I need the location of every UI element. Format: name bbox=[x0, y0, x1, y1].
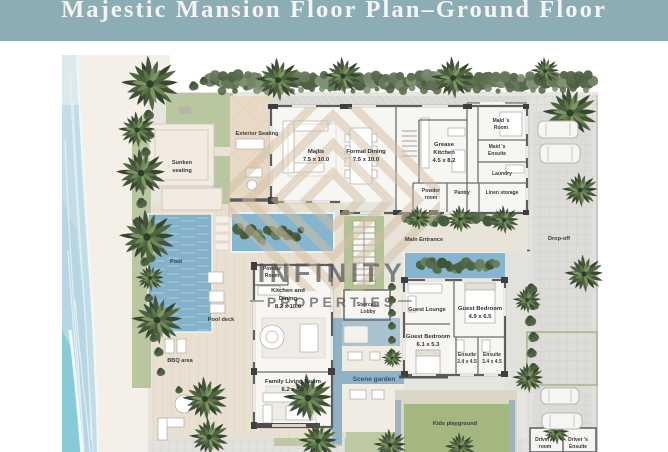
svg-text:6.2 x 5.5: 6.2 x 5.5 bbox=[282, 387, 306, 393]
svg-text:8.2 x 10.0: 8.2 x 10.0 bbox=[275, 304, 302, 310]
svg-text:Room: Room bbox=[265, 273, 280, 279]
svg-text:INFINITY: INFINITY bbox=[258, 258, 407, 288]
svg-text:Lobby: Lobby bbox=[361, 309, 376, 315]
svg-text:Linen storage: Linen storage bbox=[486, 190, 519, 196]
svg-text:room: room bbox=[425, 195, 438, 201]
svg-text:Maid 's: Maid 's bbox=[489, 144, 506, 150]
svg-text:4.5 x 8.2: 4.5 x 8.2 bbox=[433, 158, 457, 164]
svg-text:2.4 x 4.5: 2.4 x 4.5 bbox=[482, 359, 502, 365]
svg-text:Laundry: Laundry bbox=[492, 171, 512, 177]
svg-text:Ensuite: Ensuite bbox=[483, 352, 501, 358]
svg-text:Pool deck: Pool deck bbox=[208, 317, 235, 323]
svg-text:Pantry: Pantry bbox=[454, 190, 470, 196]
svg-text:Kitchen and: Kitchen and bbox=[271, 288, 305, 294]
svg-text:Kids playground: Kids playground bbox=[433, 421, 478, 427]
svg-text:Guest Lounge: Guest Lounge bbox=[408, 307, 446, 313]
svg-text:Scene garden: Scene garden bbox=[353, 376, 396, 383]
svg-text:Maid 's: Maid 's bbox=[493, 118, 510, 124]
svg-text:Ensuite: Ensuite bbox=[458, 352, 476, 358]
svg-text:Dining: Dining bbox=[279, 296, 298, 302]
svg-text:Family Living Room: Family Living Room bbox=[265, 379, 321, 385]
svg-text:Driver 's: Driver 's bbox=[535, 437, 555, 443]
svg-text:4.9 x 6.5: 4.9 x 6.5 bbox=[469, 314, 493, 320]
svg-text:7.5 x 10.0: 7.5 x 10.0 bbox=[303, 157, 330, 163]
svg-text:Majestic Mansion Floor Plan–Gr: Majestic Mansion Floor Plan–Ground Floor bbox=[61, 0, 607, 23]
svg-text:Ensuite: Ensuite bbox=[488, 151, 506, 157]
svg-text:Sunken: Sunken bbox=[172, 160, 193, 166]
svg-text:7.5 x 10.0: 7.5 x 10.0 bbox=[353, 157, 380, 163]
svg-text:Ensuite: Ensuite bbox=[569, 444, 587, 450]
svg-text:Guest Bedroom: Guest Bedroom bbox=[458, 306, 502, 312]
svg-text:Exterior Seating: Exterior Seating bbox=[236, 131, 279, 137]
svg-text:2.4 x 4.5: 2.4 x 4.5 bbox=[457, 359, 477, 365]
svg-text:Staircase: Staircase bbox=[357, 302, 379, 308]
svg-text:Powder: Powder bbox=[422, 188, 440, 194]
svg-text:Room: Room bbox=[494, 125, 509, 131]
svg-text:Formal Dining: Formal Dining bbox=[346, 149, 386, 155]
svg-text:6.1 x 5.3: 6.1 x 5.3 bbox=[417, 342, 441, 348]
svg-text:Pool: Pool bbox=[170, 259, 183, 265]
svg-text:Kitchen: Kitchen bbox=[433, 150, 455, 156]
svg-text:Majlis: Majlis bbox=[308, 149, 325, 155]
svg-text:room: room bbox=[539, 444, 552, 450]
svg-text:Main Entrance: Main Entrance bbox=[405, 237, 443, 243]
svg-text:BBQ area: BBQ area bbox=[167, 358, 193, 364]
svg-text:Driver 's: Driver 's bbox=[568, 437, 588, 443]
svg-text:seating: seating bbox=[172, 168, 192, 174]
svg-text:Grease: Grease bbox=[434, 142, 455, 148]
svg-text:Drop-off: Drop-off bbox=[548, 236, 570, 242]
svg-text:Guest Bedroom: Guest Bedroom bbox=[406, 334, 450, 340]
svg-text:Powder: Powder bbox=[263, 266, 281, 272]
